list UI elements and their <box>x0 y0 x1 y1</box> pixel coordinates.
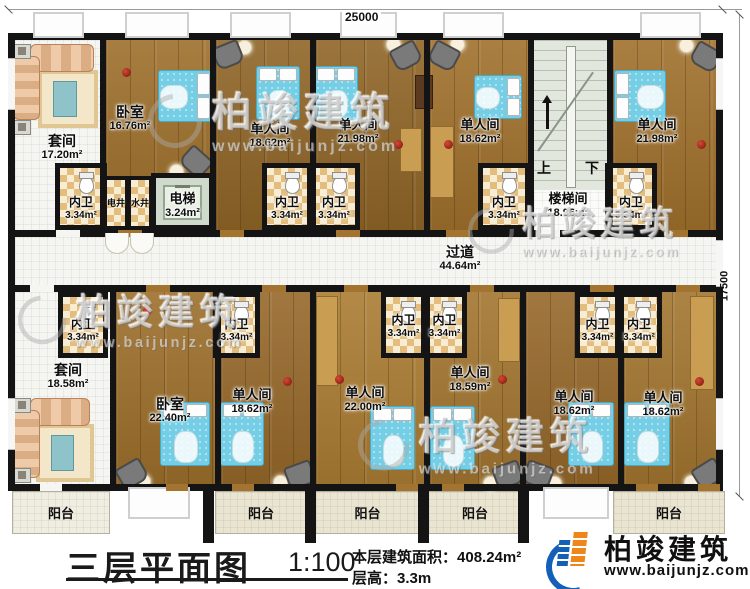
bed-pillow <box>337 68 356 81</box>
door-gap <box>470 285 494 292</box>
room-label-elec-shaft: 电井 <box>104 196 128 209</box>
balcony: 阳台 <box>428 491 522 534</box>
bed-pillow <box>453 408 472 421</box>
room-label-single-b3: 单人间18.59m² <box>435 366 505 394</box>
door-gap <box>220 230 244 237</box>
window <box>543 487 609 519</box>
bathroom-label: 内卫3.34m² <box>57 196 105 221</box>
wall <box>424 40 430 230</box>
bed-blanket <box>326 90 347 118</box>
wall <box>310 292 316 484</box>
bathroom-label: 内卫3.34m² <box>382 314 425 339</box>
door-gap <box>698 484 720 491</box>
balcony-label: 阳台 <box>656 503 682 522</box>
wall-stub <box>305 491 316 543</box>
bed-pillow <box>507 78 520 97</box>
bed <box>314 66 358 120</box>
door-gap <box>396 484 418 491</box>
stairs-arrow <box>546 103 549 129</box>
bed-blanket <box>383 435 405 468</box>
dimension-top-label: 25000 <box>342 10 381 24</box>
door-gap <box>676 285 700 292</box>
wall-speaker-dot <box>283 377 292 386</box>
balcony-label: 阳台 <box>248 503 274 522</box>
plan-title: 三层平面图 <box>66 541 251 589</box>
door-gap <box>590 285 614 292</box>
brand-url: www.baijunjz.com <box>604 562 749 579</box>
bathroom-label: 内卫3.34m² <box>607 196 655 221</box>
bed-pillow <box>259 68 278 81</box>
wall <box>520 292 526 484</box>
bathroom-label: 内卫3.34m² <box>480 196 528 221</box>
door-gap <box>40 484 62 491</box>
door-gap <box>636 484 658 491</box>
plan-scale: 1:100 <box>288 547 356 578</box>
door-gap <box>262 285 286 292</box>
wall-speaker-dot <box>143 306 152 315</box>
bed-pillow <box>616 73 629 95</box>
room-label-bedroom-bottom: 卧室22.40m² <box>135 396 205 425</box>
bathroom-label: 内卫3.34m² <box>264 196 310 221</box>
side-table <box>14 398 31 413</box>
wall-stub <box>518 491 529 543</box>
stairs-down-label: 下 <box>585 158 599 178</box>
rug-center <box>51 435 74 471</box>
bathroom-label: 内卫3.34m² <box>576 318 619 343</box>
wall-speaker-dot <box>394 140 403 149</box>
bed-blanket <box>637 85 664 110</box>
door-gap <box>56 230 80 237</box>
bed <box>430 406 475 470</box>
door-gap <box>538 230 560 237</box>
room-label-single-t4: 单人间21.98m² <box>622 118 692 146</box>
wall-speaker-dot <box>335 375 344 384</box>
window <box>125 12 189 38</box>
wall <box>8 484 723 491</box>
wall-stub <box>203 491 214 543</box>
bed-blanket <box>268 90 289 118</box>
bed <box>474 75 522 119</box>
door-gap <box>446 230 470 237</box>
window <box>443 12 504 38</box>
wall-speaker-dot <box>697 140 706 149</box>
wall-stub <box>418 491 429 543</box>
balcony-label: 阳台 <box>354 503 380 522</box>
room-label-water-shaft: 水井 <box>128 196 152 209</box>
rug <box>38 70 98 128</box>
rug <box>36 424 94 482</box>
sofa <box>13 56 40 120</box>
door-gap <box>146 285 170 292</box>
floor-area-value: 408.24m² <box>457 549 521 566</box>
room-label-single-b1: 单人间18.62m² <box>217 388 287 416</box>
floor-height-line: 层高：3.3m <box>352 567 431 588</box>
bed-pillow <box>507 98 520 117</box>
room-label-single-t3: 单人间18.62m² <box>445 118 515 146</box>
floor-area-line: 本层建筑面积：408.24m² <box>352 546 521 567</box>
window <box>716 398 723 450</box>
desk <box>690 296 714 390</box>
floor-area-label: 本层建筑面积： <box>352 549 457 566</box>
bed-blanket <box>581 431 603 464</box>
door-gap <box>232 484 254 491</box>
floor-height-label: 层高： <box>352 570 397 587</box>
wall-speaker-dot <box>122 68 131 77</box>
bathroom-label: 内卫3.34m² <box>617 318 661 343</box>
door-gap <box>344 285 368 292</box>
bed <box>370 406 415 470</box>
toilet-icon <box>79 176 94 194</box>
wall <box>110 292 116 484</box>
room-label-single-b5: 单人间18.62m² <box>628 391 698 419</box>
floor-height-value: 3.3m <box>397 570 431 587</box>
window <box>716 58 723 110</box>
balcony-label: 阳台 <box>48 503 74 522</box>
bed-blanket <box>174 431 198 464</box>
room-label-single-t2: 单人间21.98m² <box>323 118 393 146</box>
bed-blanket <box>232 431 253 464</box>
bed <box>256 66 300 120</box>
bed-pillow <box>317 68 336 81</box>
balcony-label: 阳台 <box>462 503 488 522</box>
toilet-icon <box>332 176 347 194</box>
bathroom-label: 内卫3.34m² <box>310 196 358 221</box>
door-gap <box>336 230 360 237</box>
toilet-icon <box>502 176 517 194</box>
wall-speaker-dot <box>695 377 704 386</box>
room-label-elevator: 电梯3.24m² <box>152 192 213 220</box>
window <box>8 58 15 110</box>
window <box>128 487 190 519</box>
side-table <box>14 468 31 483</box>
stairs-up-label: 上 <box>537 158 551 178</box>
room-label-suite-top: 套间17.20m² <box>22 133 102 162</box>
bathroom-label: 内卫3.34m² <box>423 314 466 339</box>
bed <box>158 70 212 122</box>
window <box>230 12 291 38</box>
bed-blanket <box>443 435 465 468</box>
room-label-suite-bottom: 套间18.58m² <box>28 362 108 391</box>
floor-plan: 25000 17500 上 下 <box>0 0 750 589</box>
bed-blanket <box>476 87 501 108</box>
bed-pillow <box>279 68 298 81</box>
room-label-bedroom-top: 卧室16.76m² <box>95 104 165 133</box>
bed-pillow <box>616 97 629 119</box>
bed-pillow <box>197 73 210 95</box>
desk <box>400 128 422 172</box>
bed <box>614 70 666 122</box>
dimension-line-right <box>739 14 740 497</box>
window <box>8 398 15 450</box>
desk <box>316 296 338 386</box>
room-label-stairwell: 楼梯间18.96m² <box>528 192 608 220</box>
dimension-right-label: 17500 <box>718 268 730 305</box>
window <box>640 12 701 38</box>
title-underline <box>66 578 348 581</box>
door-gap <box>30 285 54 292</box>
side-table <box>14 44 31 59</box>
door-gap <box>664 230 688 237</box>
bed-pillow <box>197 97 210 119</box>
room-label-single-b4: 单人间18.62m² <box>539 390 609 418</box>
door-gap <box>166 484 188 491</box>
window <box>33 12 84 38</box>
bathroom-label: 内卫3.34m² <box>60 318 106 343</box>
floor-lamp <box>679 38 694 53</box>
door-gap <box>442 484 464 491</box>
balcony: 阳台 <box>12 491 110 534</box>
bed-blanket <box>637 431 659 464</box>
toilet-icon <box>285 176 300 194</box>
room-label-corridor: 过道44.64m² <box>420 244 500 273</box>
balcony: 阳台 <box>315 491 420 534</box>
room-label-single-t1: 单人间18.62m² <box>235 122 305 150</box>
stairs-arrow-head <box>542 95 552 103</box>
balcony: 阳台 <box>215 491 307 534</box>
rug-center <box>53 81 77 117</box>
toilet-icon <box>629 176 644 194</box>
desk <box>498 298 520 362</box>
bathroom-label: 内卫3.34m² <box>214 318 259 343</box>
bed-pillow <box>433 408 452 421</box>
stairs-stringer <box>566 46 576 188</box>
room-label-single-b2: 单人间22.00m² <box>330 386 400 414</box>
